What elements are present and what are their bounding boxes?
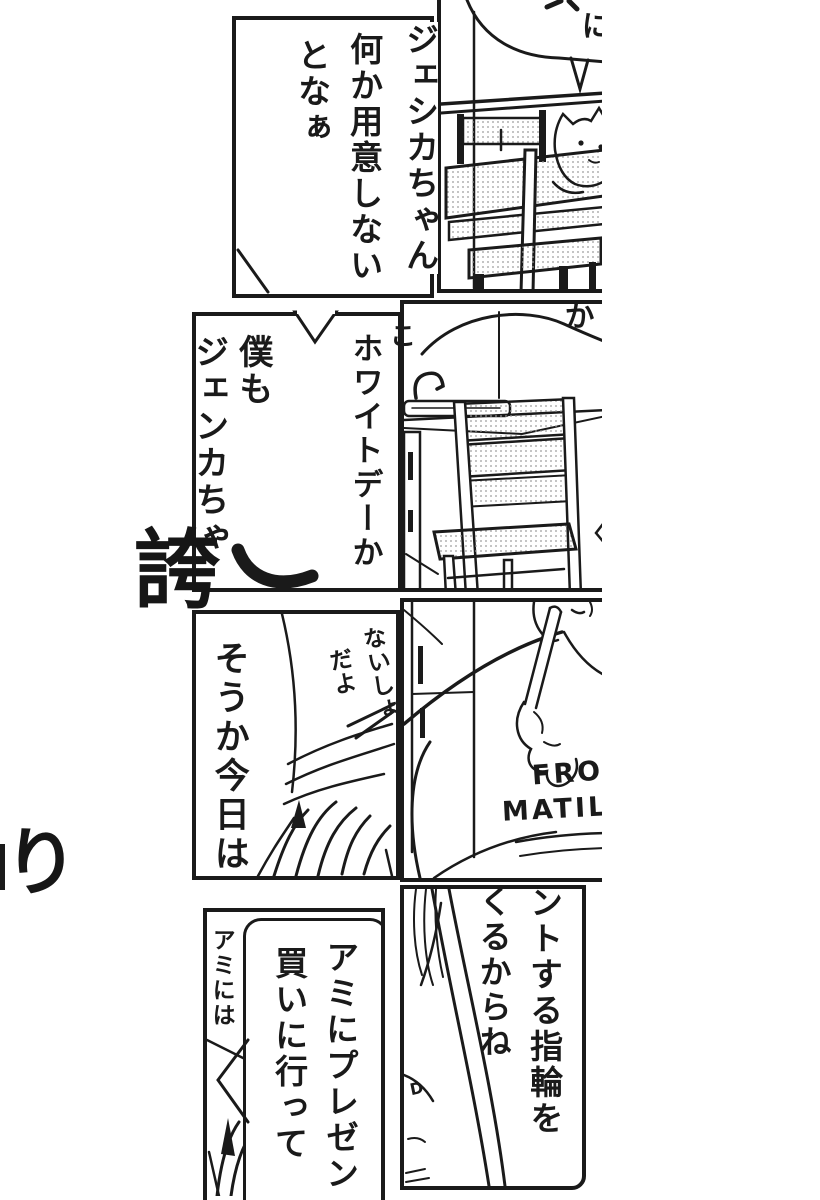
- panel-middle-right: か: [400, 300, 602, 592]
- speech-bubble: [243, 918, 385, 1200]
- speech-fragment: に: [577, 10, 602, 43]
- speech-text-line: 買いに行って: [271, 946, 306, 1162]
- speech-text-line: 何か用意しない: [346, 32, 381, 284]
- bubble-tail-notch: [290, 306, 342, 348]
- panel-top-right: に: [437, 0, 602, 293]
- speech-fragment: か: [560, 300, 592, 333]
- bubble-tail: [214, 1036, 252, 1128]
- panel-third-left: そうか今日は ないしょ だよ: [192, 610, 400, 880]
- large-title-glyph: り: [4, 826, 78, 900]
- manga-page: 何か用意しない となぁ ジェシカちゃん: [0, 0, 820, 1200]
- speech-text-line: ントする指輪を: [526, 885, 561, 1137]
- speech-text-line: そうか今日は: [210, 640, 247, 874]
- large-title-glyph: 誇: [134, 528, 220, 614]
- narration-text: アミには: [209, 928, 233, 1028]
- speech-text-line: 僕も: [234, 334, 270, 408]
- clipped-glyph-sliver: [0, 844, 5, 890]
- shirt-text: MATIL: [501, 791, 602, 828]
- shh-gesture-figure-drawing: [404, 602, 602, 878]
- bold-stroke-decoration: [228, 542, 320, 600]
- speech-text-line: となぁ: [294, 38, 329, 146]
- speech-fragment: こ: [390, 316, 416, 353]
- shirt-text: FRO: [531, 756, 602, 792]
- speech-text-line: アミにプレゼン: [322, 940, 357, 1192]
- panel-third-right: FRO MATIL: [400, 598, 602, 882]
- panel-bottom-right: D ントする指輪を くるからね: [400, 885, 586, 1190]
- speech-text-line-overflow: ジェシカちゃん: [401, 22, 438, 274]
- speech-text-line: くるからね: [476, 885, 510, 1060]
- kitchen-drawing: [404, 304, 602, 592]
- cat-and-chairs-drawing: [441, 0, 602, 293]
- speech-text-line: ホワイトデーか: [348, 332, 381, 570]
